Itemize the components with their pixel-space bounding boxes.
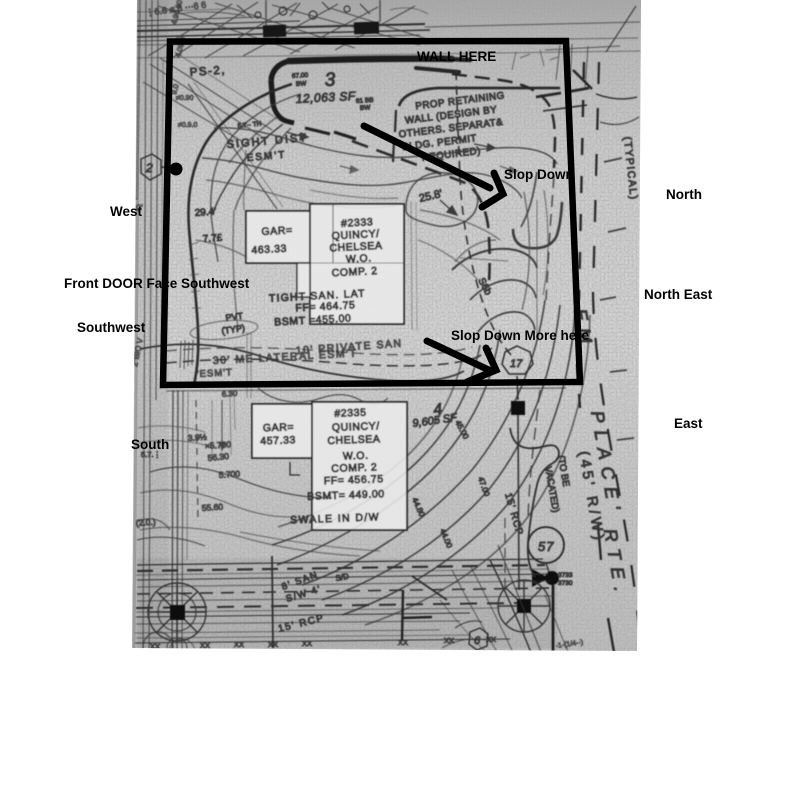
svg-text:GAR=: GAR= [261,224,293,238]
svg-text:South: South [131,437,169,452]
svg-text:XX: XX [234,640,244,649]
svg-text:Front DOOR Face Southwest: Front DOOR Face Southwest [64,276,250,291]
svg-text:55.60: 55.60 [201,502,223,513]
svg-text:QUINCY/: QUINCY/ [332,420,380,434]
svg-text:67.00: 67.00 [292,72,309,80]
svg-text:#2335: #2335 [334,407,367,420]
svg-text:463.33: 463.33 [251,243,287,257]
svg-text:×5.700: ×5.700 [204,439,231,451]
svg-text:XX: XX [150,642,160,651]
svg-text:5.700: 5.700 [218,469,240,480]
svg-text:FF= 456.75: FF= 456.75 [324,473,384,487]
svg-text:CHELSEA: CHELSEA [327,433,381,447]
svg-text:3733: 3733 [558,572,573,579]
svg-text:XX: XX [302,639,312,648]
svg-text:2: 2 [145,161,153,175]
svg-text:WALL HERE: WALL HERE [417,49,496,64]
svg-text:Slop Down More here: Slop Down More here [451,328,590,343]
svg-text:PS-2,: PS-2, [189,64,226,79]
svg-text:BW: BW [360,104,372,112]
svg-text:≠0.9.0: ≠0.9.0 [178,122,198,129]
svg-text:3.9½: 3.9½ [187,432,207,443]
svg-text:North: North [666,187,702,202]
svg-text:GAR=: GAR= [263,421,295,434]
svg-text:North East: North East [644,287,713,302]
svg-text:W.O.: W.O. [343,450,369,463]
svg-text:7.7£: 7.7£ [202,233,223,245]
svg-text:W.O.: W.O. [346,252,372,265]
svg-text:3730: 3730 [558,580,573,587]
svg-text:COMP. 2: COMP. 2 [331,265,378,279]
svg-text:XX: XX [200,641,210,650]
svg-text:57: 57 [538,539,554,554]
svg-text:West: West [110,204,143,219]
svg-text:Southwest: Southwest [77,320,146,335]
svg-text:≠0.90: ≠0.90 [176,95,194,102]
svg-text:(2.0.): (2.0.) [135,517,156,528]
svg-text:BW: BW [296,80,308,88]
svg-text:Slop Down: Slop Down [504,167,574,182]
svg-text:XX: XX [444,636,454,645]
svg-text:3: 3 [324,69,336,91]
svg-text:'ESM'T: 'ESM'T [197,367,234,380]
svg-text:29.4': 29.4' [194,207,216,219]
svg-text:East: East [674,416,703,431]
svg-text:17: 17 [510,358,523,370]
svg-text:457.33: 457.33 [260,434,296,447]
